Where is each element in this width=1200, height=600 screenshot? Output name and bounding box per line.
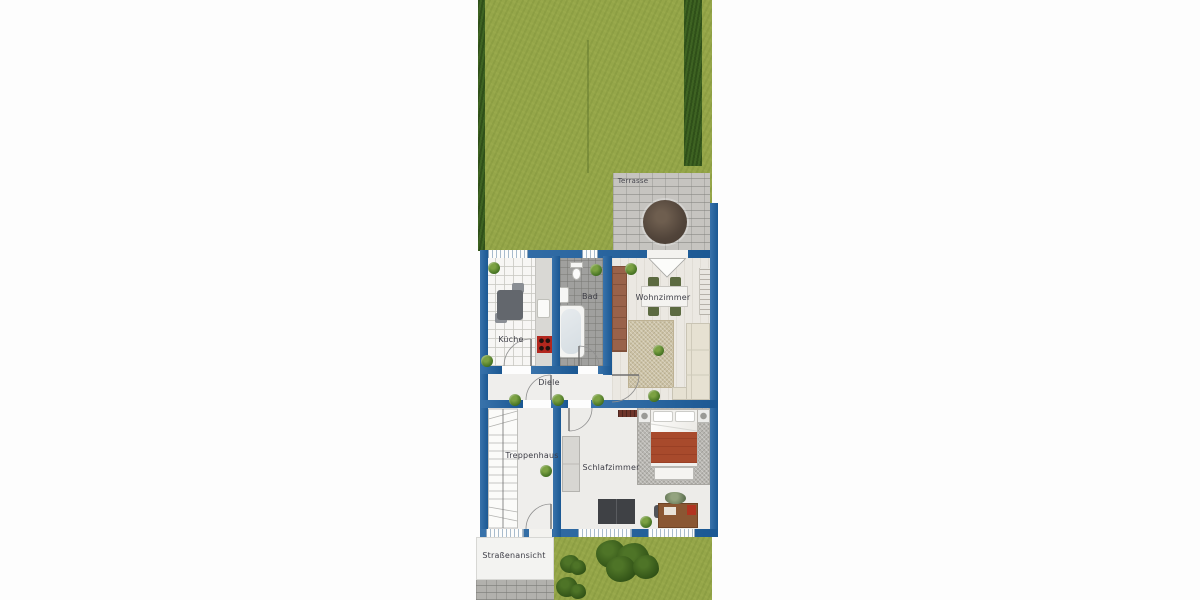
hedge-left [478,0,485,251]
terrace-door-opening [647,250,688,258]
plant-icon [625,263,637,275]
plant-icon [540,465,552,477]
dining-chair [670,306,681,316]
bedroom-radiator [618,410,637,417]
hedge-right [684,0,702,166]
lawn-seam [587,40,589,173]
tree-icon [606,556,636,582]
pillow [675,411,695,422]
wall-bath-living [603,256,612,375]
plant-icon [592,394,604,406]
dining-chair [648,306,659,316]
sofa [686,323,710,400]
plant-icon [640,516,652,528]
bedroom-window-left [578,529,632,537]
dresser [598,499,635,524]
sidewalk [476,580,554,600]
bathtub-basin [561,309,581,354]
desk-red-object [687,505,696,515]
plant-icon [653,345,664,356]
bed-bench [654,467,694,480]
wall-right [710,203,718,537]
nightstand [697,409,710,423]
desk-plant-icon [665,492,686,504]
tree-icon [633,555,659,579]
bed-blanket [651,432,697,463]
living-room-rug [628,320,674,388]
entrance-door-opening [529,529,552,537]
room-label-strassenansicht: Straßenansicht [482,552,545,560]
wall-mid-b [531,366,578,374]
room-label-bad: Bad [582,293,598,301]
room-label-treppenhaus: Treppenhaus [505,452,558,460]
bedroom-window-right [648,529,695,537]
sofa-corner [672,387,687,400]
wardrobe [562,436,580,492]
terrace-table-icon [643,200,687,244]
wall-kitchen-bath [552,256,560,374]
radiator [699,268,710,315]
pillow [653,411,673,422]
plant-icon [648,390,660,402]
plant-icon [552,394,564,406]
plant-icon [488,262,500,274]
wall-mid-a [480,366,502,374]
desk-paper [664,507,676,515]
stove [537,336,552,353]
plant-icon [590,264,602,276]
wall-mid-c [598,366,612,374]
floor-plan: Terrasse Küche Bad Wohnzimmer Diele Trep… [0,0,1200,600]
bush-icon [570,560,586,575]
stair-window [486,529,524,537]
plant-icon [481,355,493,367]
sideboard [612,266,627,352]
room-label-wohnzimmer: Wohnzimmer [636,294,691,302]
kitchen-window [488,250,528,258]
room-label-diele: Diele [538,379,559,387]
room-label-terrasse: Terrasse [618,178,649,185]
wall-stair-bedroom [553,408,561,537]
kitchen-table [497,290,523,320]
room-label-kueche: Küche [498,336,523,344]
bush-icon [570,584,586,599]
bath-window [582,250,598,258]
plant-icon [509,394,521,406]
wall-left [480,250,488,537]
room-label-schlafzimmer: Schlafzimmer [582,464,639,472]
kitchen-sink [537,299,550,318]
toilet-bowl [572,268,581,280]
